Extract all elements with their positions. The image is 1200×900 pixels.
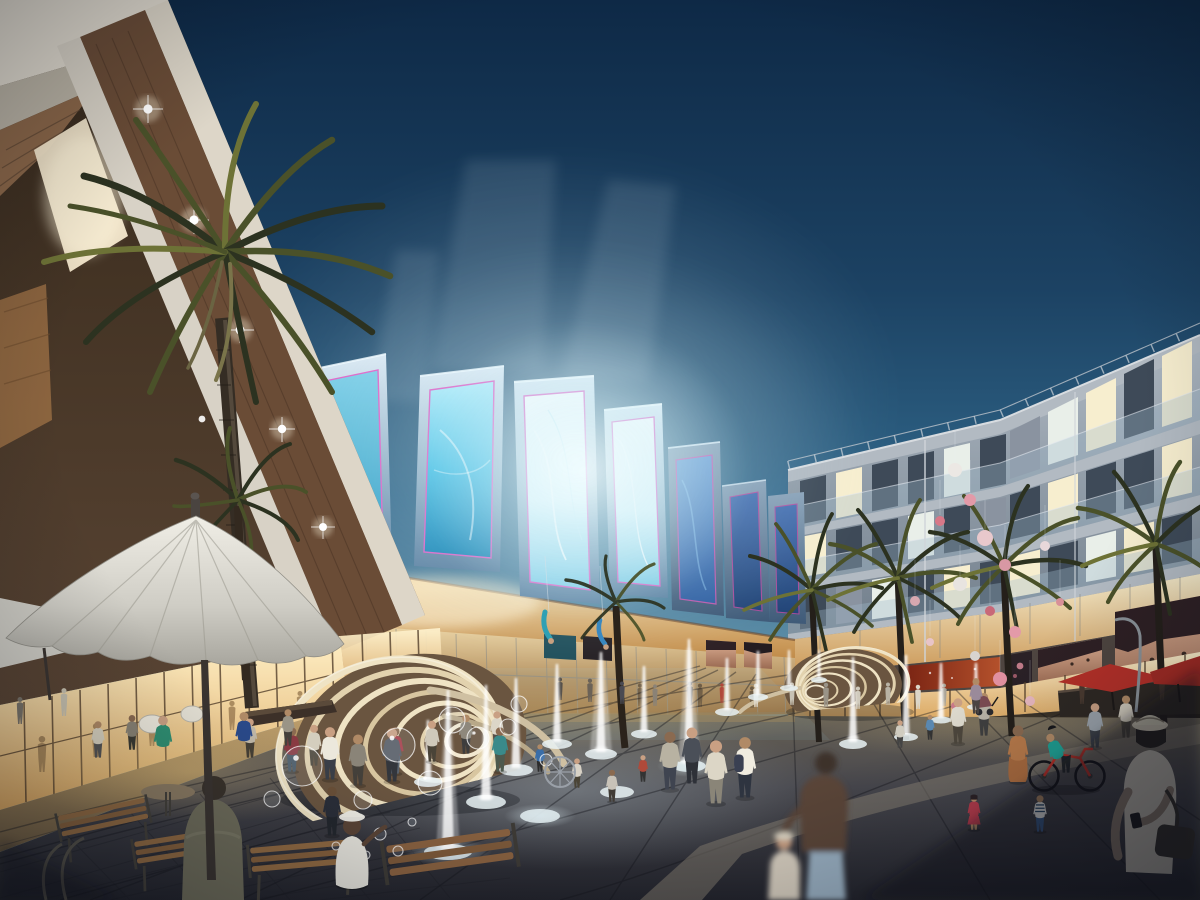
vignette: [0, 0, 1200, 900]
rendering-canvas: [0, 0, 1200, 900]
plaza-rendering: [0, 0, 1200, 900]
lighting-overlays: [0, 0, 1200, 900]
